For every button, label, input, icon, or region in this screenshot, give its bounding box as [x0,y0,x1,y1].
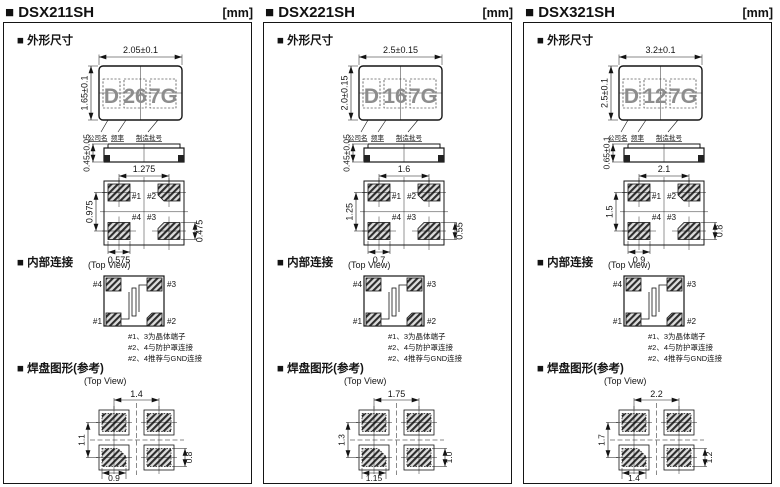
package-title: ■ DSX221SH [265,4,355,21]
internal-pad-1 [106,313,121,326]
marking-label-lot: 制造批号 [396,133,423,142]
package-title: ■ DSX211SH [5,4,94,21]
internal-pad-4 [626,278,641,291]
land-top-view-label: (Top View) [604,376,646,386]
column-header: ■ DSX221SH [mm] [260,0,520,22]
crystal-symbol [641,285,667,319]
land-section-title: ■ 焊盘图形(参考) [277,361,364,375]
body-thickness-dim: 0.65±0.1 [602,136,612,169]
internal-pad-3 [407,278,422,291]
internal-pin4-label: #4 [613,280,623,289]
bottom-pin2-label: #2 [667,192,677,201]
internal-pad-3 [147,278,162,291]
outline-section-title: ■ 外形尺寸 [537,33,594,47]
internal-section-title: ■ 内部连接 [17,255,74,269]
land-pitch-y-dim: 1.1 [77,434,87,446]
pad-pitch-y-dim: 1.5 [605,206,615,219]
pad-height-dim: 0.55 [455,222,465,240]
internal-note-2: #2、4与防护罩连接 [388,342,454,352]
internal-pin1-label: #1 [353,317,363,326]
internal-pin2-label: #2 [687,317,697,326]
land-top-view-label: (Top View) [344,376,386,386]
body-height-dim: 2.5±0.1 [600,78,610,108]
bottom-pin4-label: #4 [132,213,142,222]
land-pitch-x-dim: 1.4 [130,389,143,399]
land-pad-height-dim: 1.0 [444,451,454,463]
marking-lot-code: 7G [669,85,697,108]
body-width-dim: 2.05±0.1 [123,45,158,55]
package-column: ■ DSX321SH [mm] ■ 外形尺寸 3.2±0.1 [520,0,780,487]
internal-note-1: #1、3为晶体端子 [388,331,446,341]
body-width-dim: 3.2±0.1 [646,45,676,55]
bottom-pin1-label: #1 [392,192,402,201]
body-thickness-dim: 0.45±0.05 [342,134,352,172]
internal-pin3-label: #3 [687,280,697,289]
pad-pitch-y-dim: 1.25 [345,203,355,221]
package-title: ■ DSX321SH [525,4,615,21]
internal-top-view-label: (Top View) [348,260,390,270]
outline-bottom-view: 1.6 #1 #2 # [345,164,465,265]
outline-bottom-view: 2.1 #1 #2 # [605,164,725,265]
internal-connection-view: #4 #3 #1 #2 #1、3为晶体端子 #2、4与防护罩连接 #2、4推荐与… [613,276,723,363]
internal-note-3: #2、4推荐与GND连接 [128,353,203,363]
bottom-pin3-label: #3 [147,213,157,222]
marking-label-lot: 制造批号 [656,133,683,142]
marking-company-code: D [624,85,639,108]
side-terminal [438,155,444,162]
internal-pad-4 [366,278,381,291]
outline-top-view: 3.2±0.1 D 12 7G 2.5±0.1 [600,45,703,142]
internal-pin1-label: #1 [93,317,103,326]
outline-bottom-view: 1.275 #1 #2 [85,164,205,265]
bottom-pin1-label: #1 [132,192,142,201]
crystal-symbol [381,285,407,319]
side-terminal [364,155,370,162]
marking-label-frequency: 频率 [111,133,125,142]
internal-pin4-label: #4 [93,280,103,289]
column-header: ■ DSX211SH [mm] [0,0,260,22]
land-pad-height-dim: 1.2 [704,451,714,463]
package-column: ■ DSX221SH [mm] ■ 外形尺寸 2.5±0.15 [260,0,520,487]
land-top-view-label: (Top View) [84,376,126,386]
marking-frequency-code: 16 [383,85,406,108]
internal-connection-view: #4 #3 #1 #2 #1、3为晶体端子 #2、4与防护罩连接 #2、4推荐与… [93,276,203,363]
internal-note-2: #2、4与防护罩连接 [128,342,194,352]
unit-label: [mm] [742,6,773,20]
package-panel: ■ 外形尺寸 3.2±0.1 D 12 7G 2.5±0.1 [523,22,772,484]
bottom-pin3-label: #3 [407,213,417,222]
internal-pad-1 [366,313,381,326]
body-thickness-dim: 0.45±0.05 [82,134,92,172]
outline-top-view: 2.5±0.15 D 16 7G 2.0±0.15 [340,45,443,142]
marking-company-code: D [104,85,119,108]
marking-lot-code: 7G [409,85,437,108]
land-pattern-view: 2.2 [597,389,715,482]
datasheet-page: ■ DSX211SH [mm] ■ 外形尺寸 2.05±0.1 [0,0,780,487]
land-pitch-y-dim: 1.7 [597,434,607,446]
land-pad-width-dim: 0.9 [108,473,120,482]
internal-section-title: ■ 内部连接 [537,255,594,269]
land-pattern-view: 1.75 [337,389,455,482]
marking-frequency-code: 12 [643,85,666,108]
internal-pad-3 [667,278,682,291]
body-height-dim: 2.0±0.15 [340,76,350,111]
side-terminal [178,155,184,162]
bottom-pin2-label: #2 [147,192,157,201]
land-pitch-x-dim: 1.75 [388,389,406,399]
bottom-pin4-label: #4 [392,213,402,222]
internal-note-1: #1、3为晶体端子 [128,331,186,341]
outline-section-title: ■ 外形尺寸 [17,33,74,47]
marking-label-frequency: 频率 [371,133,385,142]
internal-note-3: #2、4推荐与GND连接 [648,353,723,363]
outline-section-title: ■ 外形尺寸 [277,33,334,47]
side-terminal [698,155,704,162]
internal-connection-view: #4 #3 #1 #2 #1、3为晶体端子 #2、4与防护罩连接 #2、4推荐与… [353,276,463,363]
internal-pin3-label: #3 [427,280,437,289]
body-width-dim: 2.5±0.15 [383,45,418,55]
package-panel: ■ 外形尺寸 2.05±0.1 D 26 7G 1.65±0.1 [3,22,252,484]
package-panel: ■ 外形尺寸 2.5±0.15 D 16 7G 2.0±0.15 [263,22,512,484]
land-section-title: ■ 焊盘图形(参考) [537,361,624,375]
marking-label-lot: 制造批号 [136,133,163,142]
column-header: ■ DSX321SH [mm] [520,0,780,22]
unit-label: [mm] [482,6,513,20]
internal-pad-2 [667,313,682,326]
unit-label: [mm] [222,6,253,20]
bottom-pin2-label: #2 [407,192,417,201]
land-pad-height-dim: 0.8 [184,451,194,463]
crystal-symbol [121,285,147,319]
marking-frequency-code: 26 [123,85,146,108]
internal-section-title: ■ 内部连接 [277,255,334,269]
internal-pin1-label: #1 [613,317,623,326]
side-terminal [624,155,630,162]
internal-pad-2 [147,313,162,326]
package-drawing: ■ 外形尺寸 2.05±0.1 D 26 7G 1.65±0.1 [4,23,250,482]
internal-note-3: #2、4推荐与GND连接 [388,353,463,363]
internal-pin2-label: #2 [167,317,177,326]
side-terminal [104,155,110,162]
pad-height-dim: 0.475 [195,220,205,243]
internal-pin3-label: #3 [167,280,177,289]
internal-top-view-label: (Top View) [608,260,650,270]
internal-pin2-label: #2 [427,317,437,326]
pad-pitch-x-dim: 2.1 [658,164,671,174]
internal-pad-2 [407,313,422,326]
bottom-pin3-label: #3 [667,213,677,222]
package-drawing: ■ 外形尺寸 3.2±0.1 D 12 7G 2.5±0.1 [524,23,770,482]
marking-lot-code: 7G [149,85,177,108]
pad-height-dim: 0.8 [715,225,725,238]
pad-pitch-y-dim: 0.975 [85,201,95,224]
internal-pin4-label: #4 [353,280,363,289]
land-pitch-x-dim: 2.2 [650,389,663,399]
package-drawing: ■ 外形尺寸 2.5±0.15 D 16 7G 2.0±0.15 [264,23,510,482]
bottom-pin1-label: #1 [652,192,662,201]
outline-top-view: 2.05±0.1 D 26 7G 1.65±0.1 [80,45,183,142]
marking-company-code: D [364,85,379,108]
bottom-pin4-label: #4 [652,213,662,222]
package-column: ■ DSX211SH [mm] ■ 外形尺寸 2.05±0.1 [0,0,260,487]
internal-note-1: #1、3为晶体端子 [648,331,706,341]
land-section-title: ■ 焊盘图形(参考) [17,361,104,375]
land-pattern-view: 1.4 [77,389,195,482]
marking-label-frequency: 频率 [631,133,645,142]
body-height-dim: 1.65±0.1 [80,76,90,111]
internal-pad-1 [626,313,641,326]
land-pad-width-dim: 1.15 [366,473,383,482]
pad-pitch-x-dim: 1.6 [398,164,411,174]
internal-top-view-label: (Top View) [88,260,130,270]
pad-pitch-x-dim: 1.275 [133,164,156,174]
land-pad-width-dim: 1.4 [628,473,640,482]
internal-pad-4 [106,278,121,291]
internal-note-2: #2、4与防护罩连接 [648,342,714,352]
land-pitch-y-dim: 1.3 [337,434,347,446]
